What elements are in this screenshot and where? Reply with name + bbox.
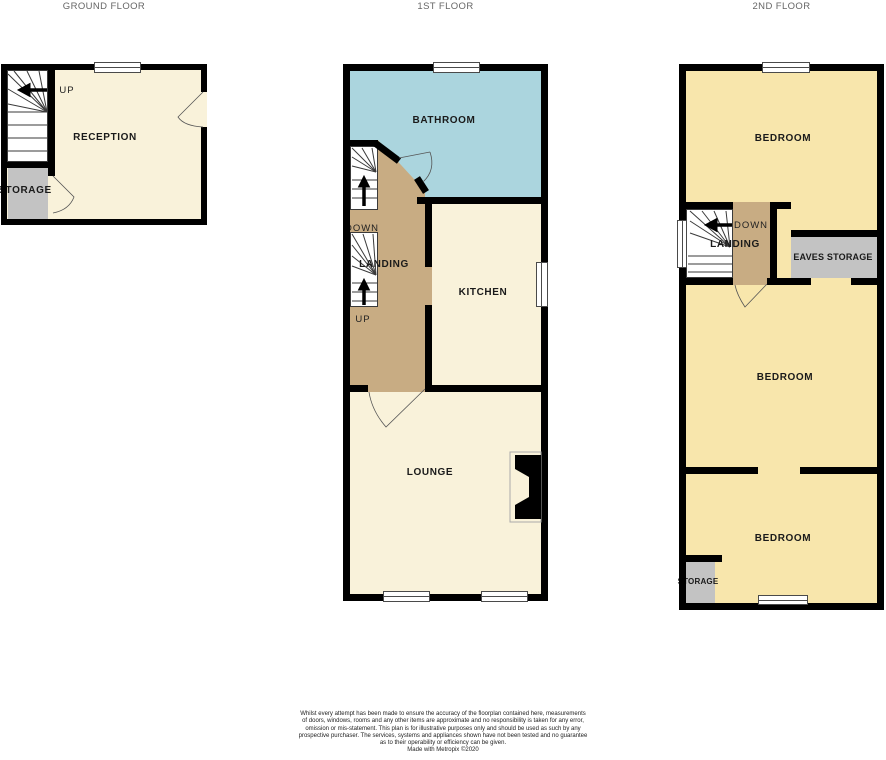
wall-segment <box>679 278 733 285</box>
wall-segment <box>48 70 55 168</box>
wall-segment <box>800 467 884 474</box>
wall-segment <box>48 168 55 176</box>
second-floor-title: 2ND FLOOR <box>679 1 884 12</box>
disclaimer-line: omission or mis-statement. This plan is … <box>143 726 743 733</box>
up-label: UP <box>323 314 403 325</box>
wall-segment <box>350 140 378 146</box>
window <box>762 62 810 73</box>
wall-segment <box>851 278 884 285</box>
disclaimer-line: Whilst every attempt has been made to en… <box>143 711 743 718</box>
landing-label: LANDING <box>675 239 795 250</box>
doorway-floor <box>425 267 432 305</box>
wall-segment <box>679 64 686 610</box>
wall-segment <box>770 202 791 209</box>
wall-segment <box>767 278 791 285</box>
wall-segment <box>425 305 432 385</box>
credit-line: Made with Metropix ©2020 <box>143 747 743 754</box>
down-label: DOWN <box>711 220 791 231</box>
window <box>433 62 480 73</box>
disclaimer-line: of doors, windows, rooms and any other i… <box>143 718 743 725</box>
wall-segment <box>770 209 777 285</box>
storage-label: STORAGE <box>648 577 748 586</box>
bedroom-middle-label: BEDROOM <box>725 372 845 383</box>
first-floor-plan: BATHROOM KITCHEN LOUNGE LANDING DOWN UP <box>343 64 548 601</box>
room-bedrooms <box>686 71 877 603</box>
wall-segment <box>791 278 811 285</box>
wall-segment <box>343 385 368 392</box>
disclaimer-line: prospective purchaser. The services, sys… <box>143 733 743 740</box>
bedroom-bottom-label: BEDROOM <box>723 533 843 544</box>
second-floor-plan: BEDROOM DOWN LANDING EAVES STORAGE BEDRO… <box>679 64 884 610</box>
wall-segment <box>201 64 207 225</box>
window <box>481 591 528 602</box>
first-floor-title: 1ST FLOOR <box>343 1 548 12</box>
wall-segment <box>877 64 884 610</box>
wall-segment <box>686 467 758 474</box>
window <box>536 262 548 307</box>
ground-floor-title: GROUND FLOOR <box>1 1 207 12</box>
wall-segment <box>1 64 7 225</box>
wall-segment <box>791 230 884 237</box>
wall-segment <box>343 64 350 601</box>
window <box>94 62 141 73</box>
window <box>758 595 808 605</box>
staircase-up <box>350 146 378 210</box>
ground-floor-plan: RECEPTION UP STORAGE <box>1 64 207 225</box>
bathroom-label: BATHROOM <box>374 115 514 126</box>
wall-segment <box>425 385 548 392</box>
lounge-label: LOUNGE <box>370 467 490 478</box>
reception-label: RECEPTION <box>45 132 165 143</box>
storage-label: STORAGE <box>0 185 77 196</box>
floorplan-page: GROUND FLOOR 1ST FLOOR 2ND FLOOR RECEPTI… <box>0 0 886 760</box>
wall-segment <box>686 202 733 209</box>
disclaimer-text: Whilst every attempt has been made to en… <box>143 711 743 755</box>
wall-segment <box>686 555 722 562</box>
up-label: UP <box>37 85 97 96</box>
eaves-storage-label: EAVES STORAGE <box>783 252 883 262</box>
bedroom-top-label: BEDROOM <box>723 133 843 144</box>
window <box>383 591 430 602</box>
wall-segment <box>1 219 207 225</box>
wall-segment <box>541 64 548 601</box>
wall-segment <box>425 204 432 267</box>
staircase <box>7 70 48 162</box>
door-opening <box>199 92 207 127</box>
down-label: DOWN <box>322 223 402 234</box>
kitchen-label: KITCHEN <box>423 287 543 298</box>
window <box>677 220 687 268</box>
wall-segment <box>417 197 548 204</box>
